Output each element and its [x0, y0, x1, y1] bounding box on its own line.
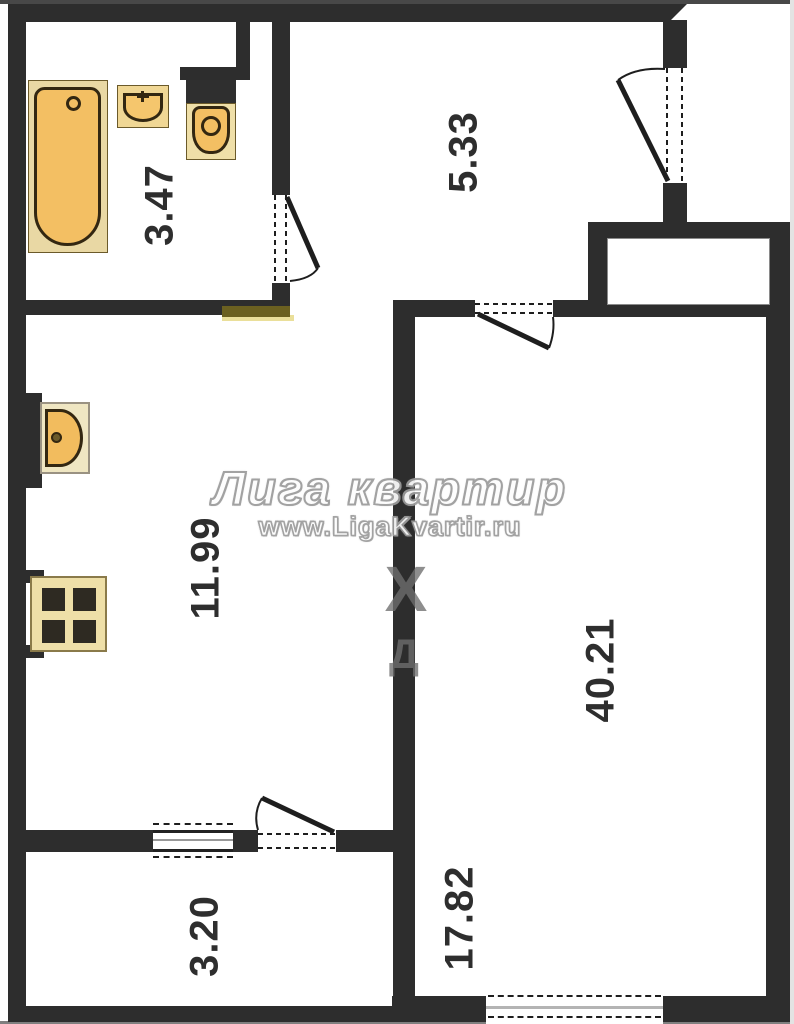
room-area-balcony: 3.20 [183, 895, 228, 977]
wall-room-top-mid [553, 300, 610, 317]
door-swing-arc [256, 798, 262, 830]
wall-room-bottom-right [663, 996, 790, 1022]
wall-bathroom-hall [272, 20, 290, 195]
balcony-window-frame-top [153, 830, 233, 833]
balcony-window-dash-top [153, 823, 233, 825]
door-leaf [478, 314, 549, 348]
threshold-strip-olive [222, 306, 290, 317]
room-area-hallway: 5.33 [442, 111, 487, 193]
floor-plan: 3.47 5.33 11.99 40.21 17.82 3.20 Х Д Лиг… [0, 0, 794, 1024]
room-area-bathroom: 3.47 [138, 164, 183, 246]
door-leaf [262, 798, 334, 832]
photo-edge-top [0, 0, 794, 4]
wall-left [8, 4, 26, 1018]
balcony-window-dash-bottom [153, 856, 233, 858]
room-area-kitchen: 11.99 [184, 517, 229, 620]
living-room-window-dash-bottom [488, 1016, 661, 1018]
room-area-living: 17.82 [438, 865, 483, 970]
door-swing-arc [549, 317, 554, 348]
toilet-bowl-hole [201, 116, 221, 136]
watermark-glyph-d: Д [389, 630, 419, 678]
door-swing-arc [618, 69, 665, 80]
balcony-window-glass-line [153, 839, 233, 841]
living-room-window-glass-line [486, 1006, 663, 1009]
living-room-window [486, 996, 663, 1024]
photo-edge-right [790, 0, 794, 1024]
wall-right [766, 300, 790, 1022]
door-swing-arc [290, 268, 318, 281]
stove-burner [42, 588, 65, 611]
door-leaf [287, 197, 318, 268]
door-leaf [618, 80, 668, 181]
wall-top [8, 4, 687, 22]
watermark-glyph-x: Х [385, 552, 428, 626]
bathtub-drain [66, 96, 81, 111]
stove-burner [73, 620, 96, 643]
stove-burner [73, 588, 96, 611]
watermark-url: www.LigaKvartir.ru [258, 512, 521, 543]
wall-kitchen-balcony-left [8, 830, 153, 852]
bathtub-basin [34, 87, 101, 246]
watermark-title: Лига квартир [213, 461, 567, 516]
wall-niche-horizontal [180, 67, 250, 80]
room-area-total: 40.21 [579, 617, 624, 722]
living-room-window-dash-top [488, 995, 661, 997]
toilet-tank [186, 80, 236, 103]
bathroom-door [266, 190, 330, 290]
ventilation-shaft-inner [607, 238, 770, 305]
entrance-door [606, 60, 694, 190]
wall-balcony-bottom [8, 1006, 392, 1022]
kitchen-faucet-icon [51, 432, 62, 443]
wall-kitchen-balcony-right [336, 830, 415, 852]
stove-burner [42, 620, 65, 643]
faucet-icon [141, 91, 144, 102]
living-room-door [468, 294, 560, 356]
balcony-window-frame-bottom [153, 849, 233, 852]
wall-room-bottom-left [392, 996, 486, 1022]
balcony-door [250, 788, 344, 860]
